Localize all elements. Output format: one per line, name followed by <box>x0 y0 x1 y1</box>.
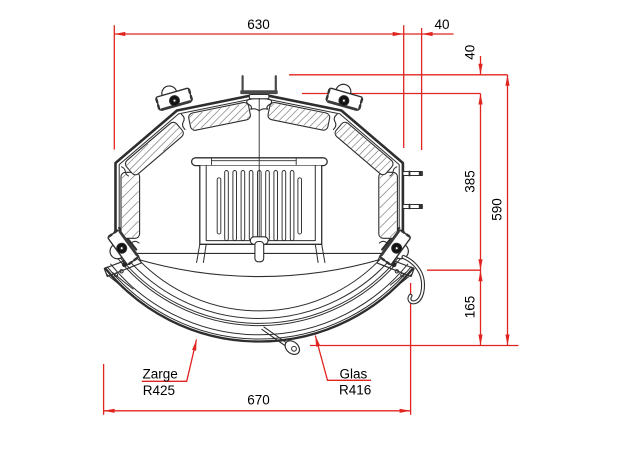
svg-text:385: 385 <box>463 170 478 193</box>
svg-text:590: 590 <box>490 198 505 221</box>
svg-text:40: 40 <box>434 17 449 32</box>
svg-text:Glas: Glas <box>340 367 368 382</box>
svg-text:630: 630 <box>247 17 270 32</box>
svg-text:40: 40 <box>463 45 478 60</box>
svg-text:165: 165 <box>463 296 478 319</box>
svg-text:R416: R416 <box>339 383 371 398</box>
svg-text:670: 670 <box>247 393 270 408</box>
svg-text:Zarge: Zarge <box>143 366 178 381</box>
svg-text:R425: R425 <box>143 383 175 398</box>
